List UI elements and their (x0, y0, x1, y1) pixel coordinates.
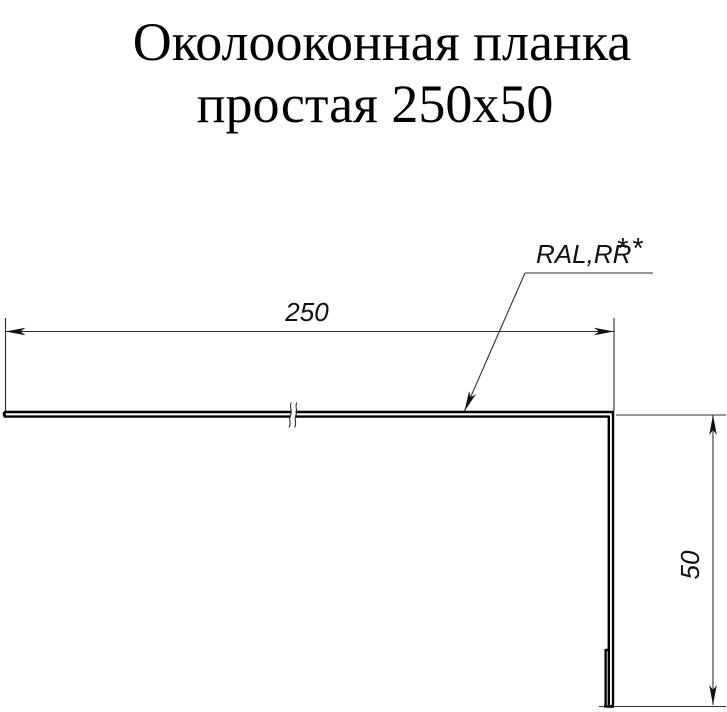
drawing-canvas: Околооконная планка простая 250х50 (0, 0, 727, 712)
height-dimension-label: 50 (675, 550, 705, 579)
technical-drawing: Околооконная планка простая 250х50 (0, 0, 727, 712)
width-dimension-label: 250 (284, 297, 329, 327)
coating-label-stars: ** (616, 233, 647, 265)
page-title-line1: Околооконная планка (133, 12, 631, 72)
page-title-line2: простая 250х50 (197, 74, 554, 134)
